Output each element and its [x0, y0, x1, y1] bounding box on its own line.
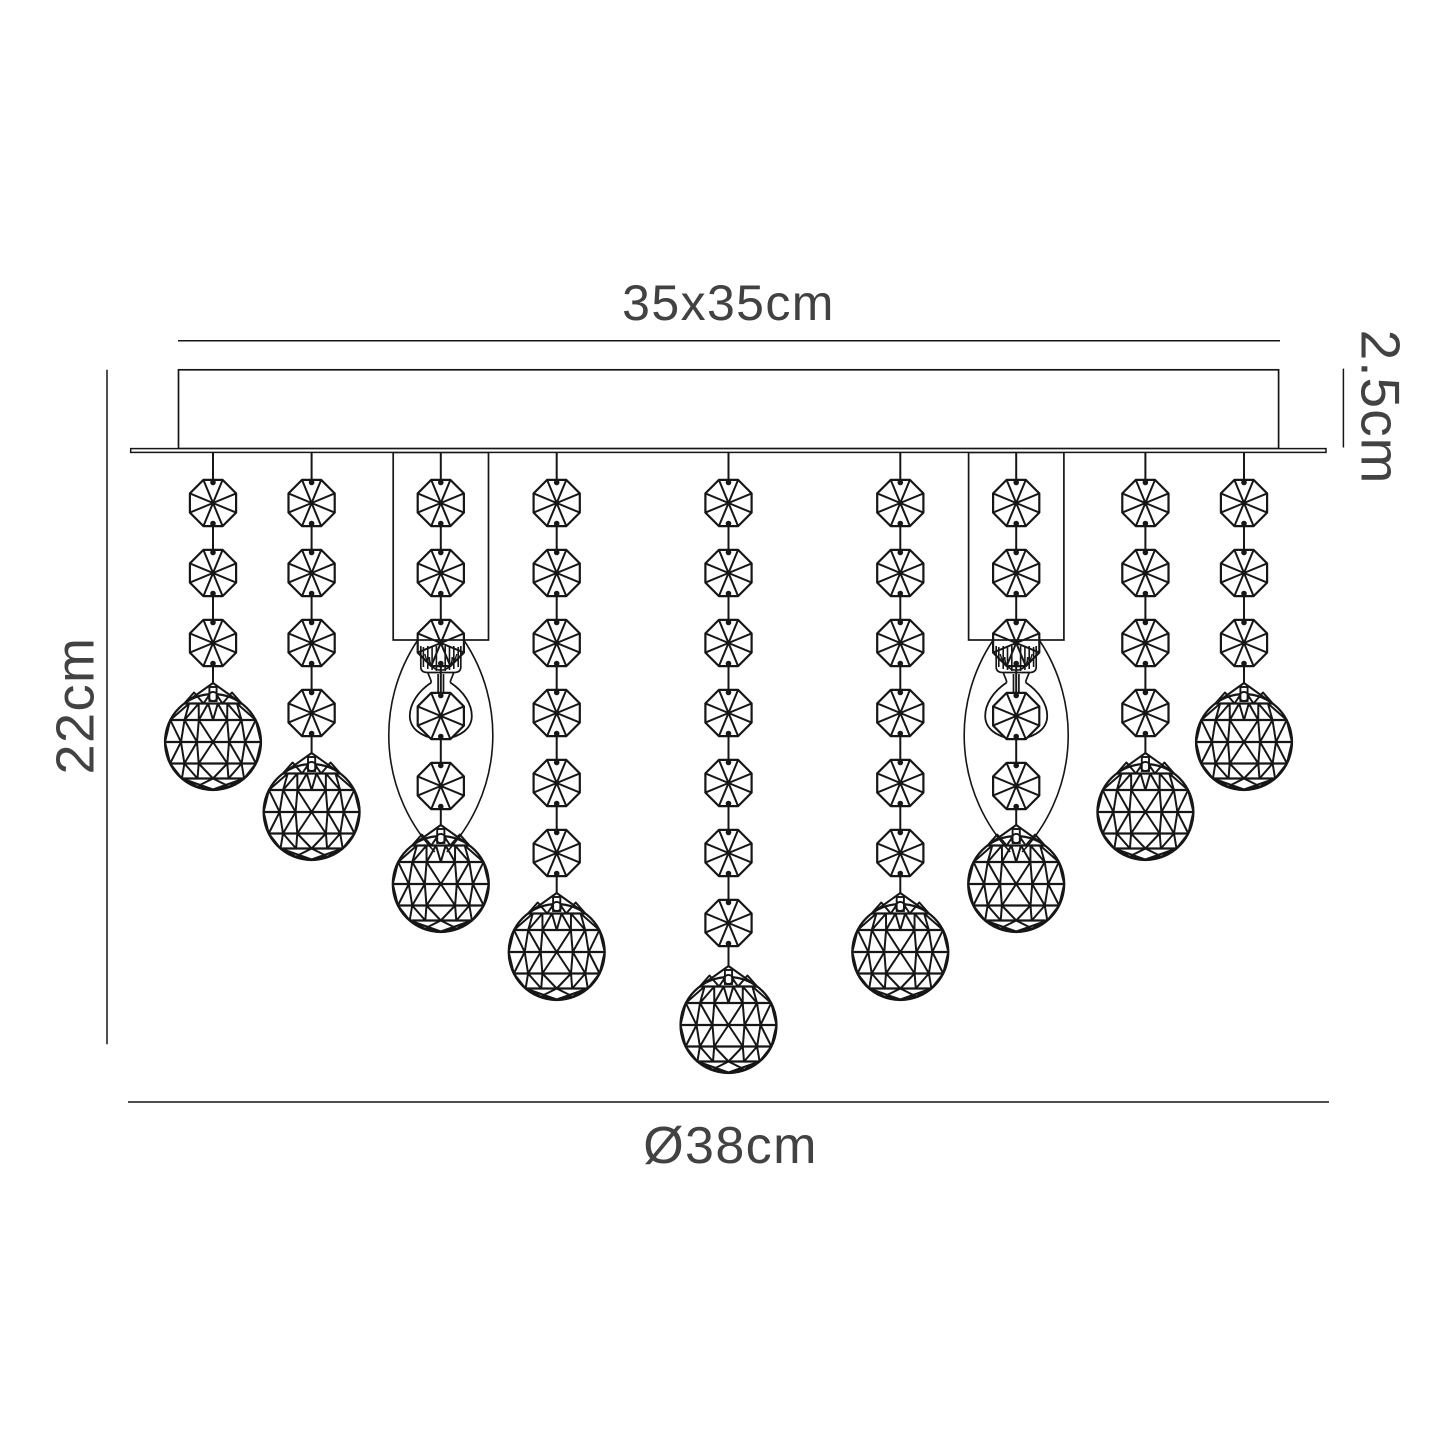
svg-text:22cm: 22cm — [46, 636, 106, 774]
svg-text:35x35cm: 35x35cm — [622, 275, 835, 331]
svg-text:2.5cm: 2.5cm — [1350, 330, 1412, 485]
svg-text:Ø38cm: Ø38cm — [643, 1117, 818, 1175]
